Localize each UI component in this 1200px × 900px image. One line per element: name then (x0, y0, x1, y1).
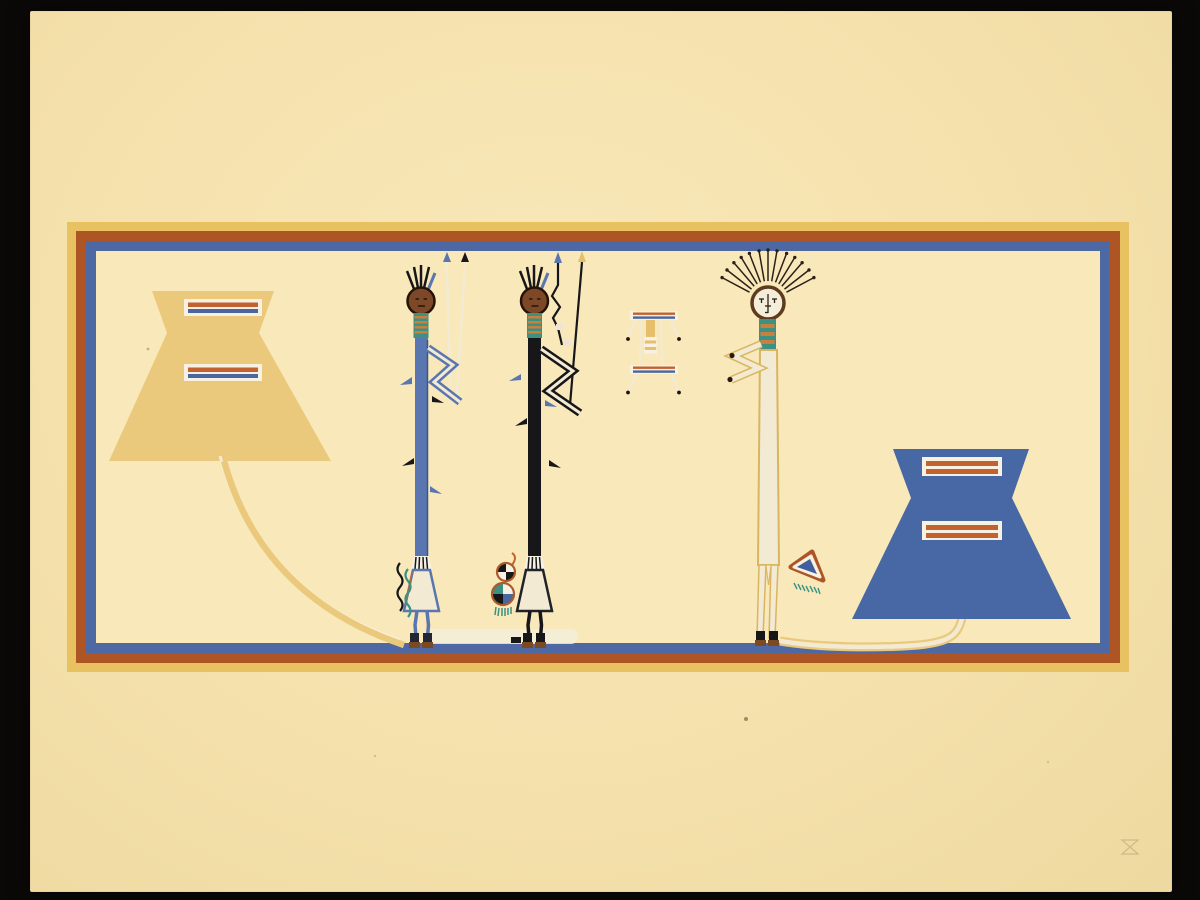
blue-yei-body (415, 338, 428, 568)
photo-background: { "scene": { "kind": "photograph of a sc… (0, 0, 1200, 900)
stand-column-bands (644, 337, 657, 354)
small-black-ground-block (511, 637, 521, 643)
hand-band (564, 340, 571, 346)
stand-top-bar (630, 311, 678, 320)
black-yei-neck (527, 313, 542, 338)
blue-yei-sash (411, 556, 432, 570)
pale-ground-band (426, 629, 578, 644)
black-yei-body (528, 338, 541, 568)
blue-yei-neck (414, 313, 429, 338)
left-cloud-bar-2 (184, 364, 262, 381)
gourd-top-circle (497, 563, 515, 581)
stand-bottom-bar (630, 365, 678, 374)
print-paper (30, 11, 1172, 892)
blind-stamp (1122, 840, 1138, 854)
arm-tip (729, 353, 734, 358)
black-yei-sash (524, 556, 545, 570)
artwork-panel (30, 11, 1172, 892)
stand-column (646, 320, 655, 337)
hand-band (556, 324, 563, 330)
right-cloud-bar-1 (922, 457, 1002, 476)
black-yei-head (521, 288, 548, 315)
right-cloud-bar-2 (922, 521, 1002, 540)
ground-marks (426, 629, 578, 644)
blue-yei-head (408, 288, 435, 315)
arm-tip (727, 377, 732, 382)
white-yei-body (758, 350, 779, 565)
left-cloud-bar-1 (184, 299, 262, 316)
gourd-bottom-circle (492, 583, 514, 605)
